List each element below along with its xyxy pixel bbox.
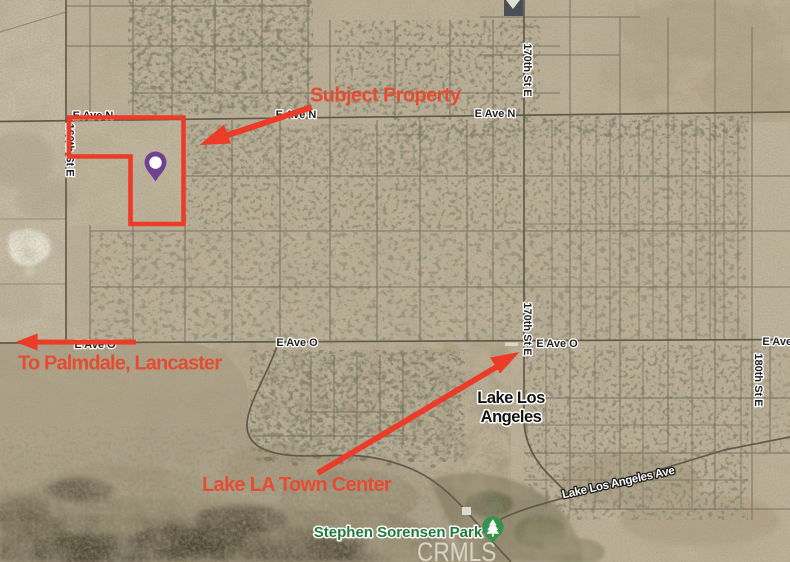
svg-text:To Palmdale, Lancaster: To Palmdale, Lancaster [18,353,222,375]
svg-text:E Ave N: E Ave N [475,108,516,120]
svg-text:180th St E: 180th St E [752,353,764,406]
svg-text:E Ave O: E Ave O [276,337,318,349]
svg-text:Angeles: Angeles [481,408,542,426]
svg-text:E Ave O: E Ave O [762,336,790,348]
svg-text:CRMLS: CRMLS [417,537,496,562]
svg-text:E Ave O: E Ave O [536,338,578,350]
svg-text:Subject Property: Subject Property [310,85,462,107]
svg-text:170th St E: 170th St E [521,302,533,355]
svg-text:170th St E: 170th St E [521,43,533,96]
svg-text:Lake Los: Lake Los [477,389,545,407]
svg-text:Lake LA Town Center: Lake LA Town Center [202,474,392,496]
